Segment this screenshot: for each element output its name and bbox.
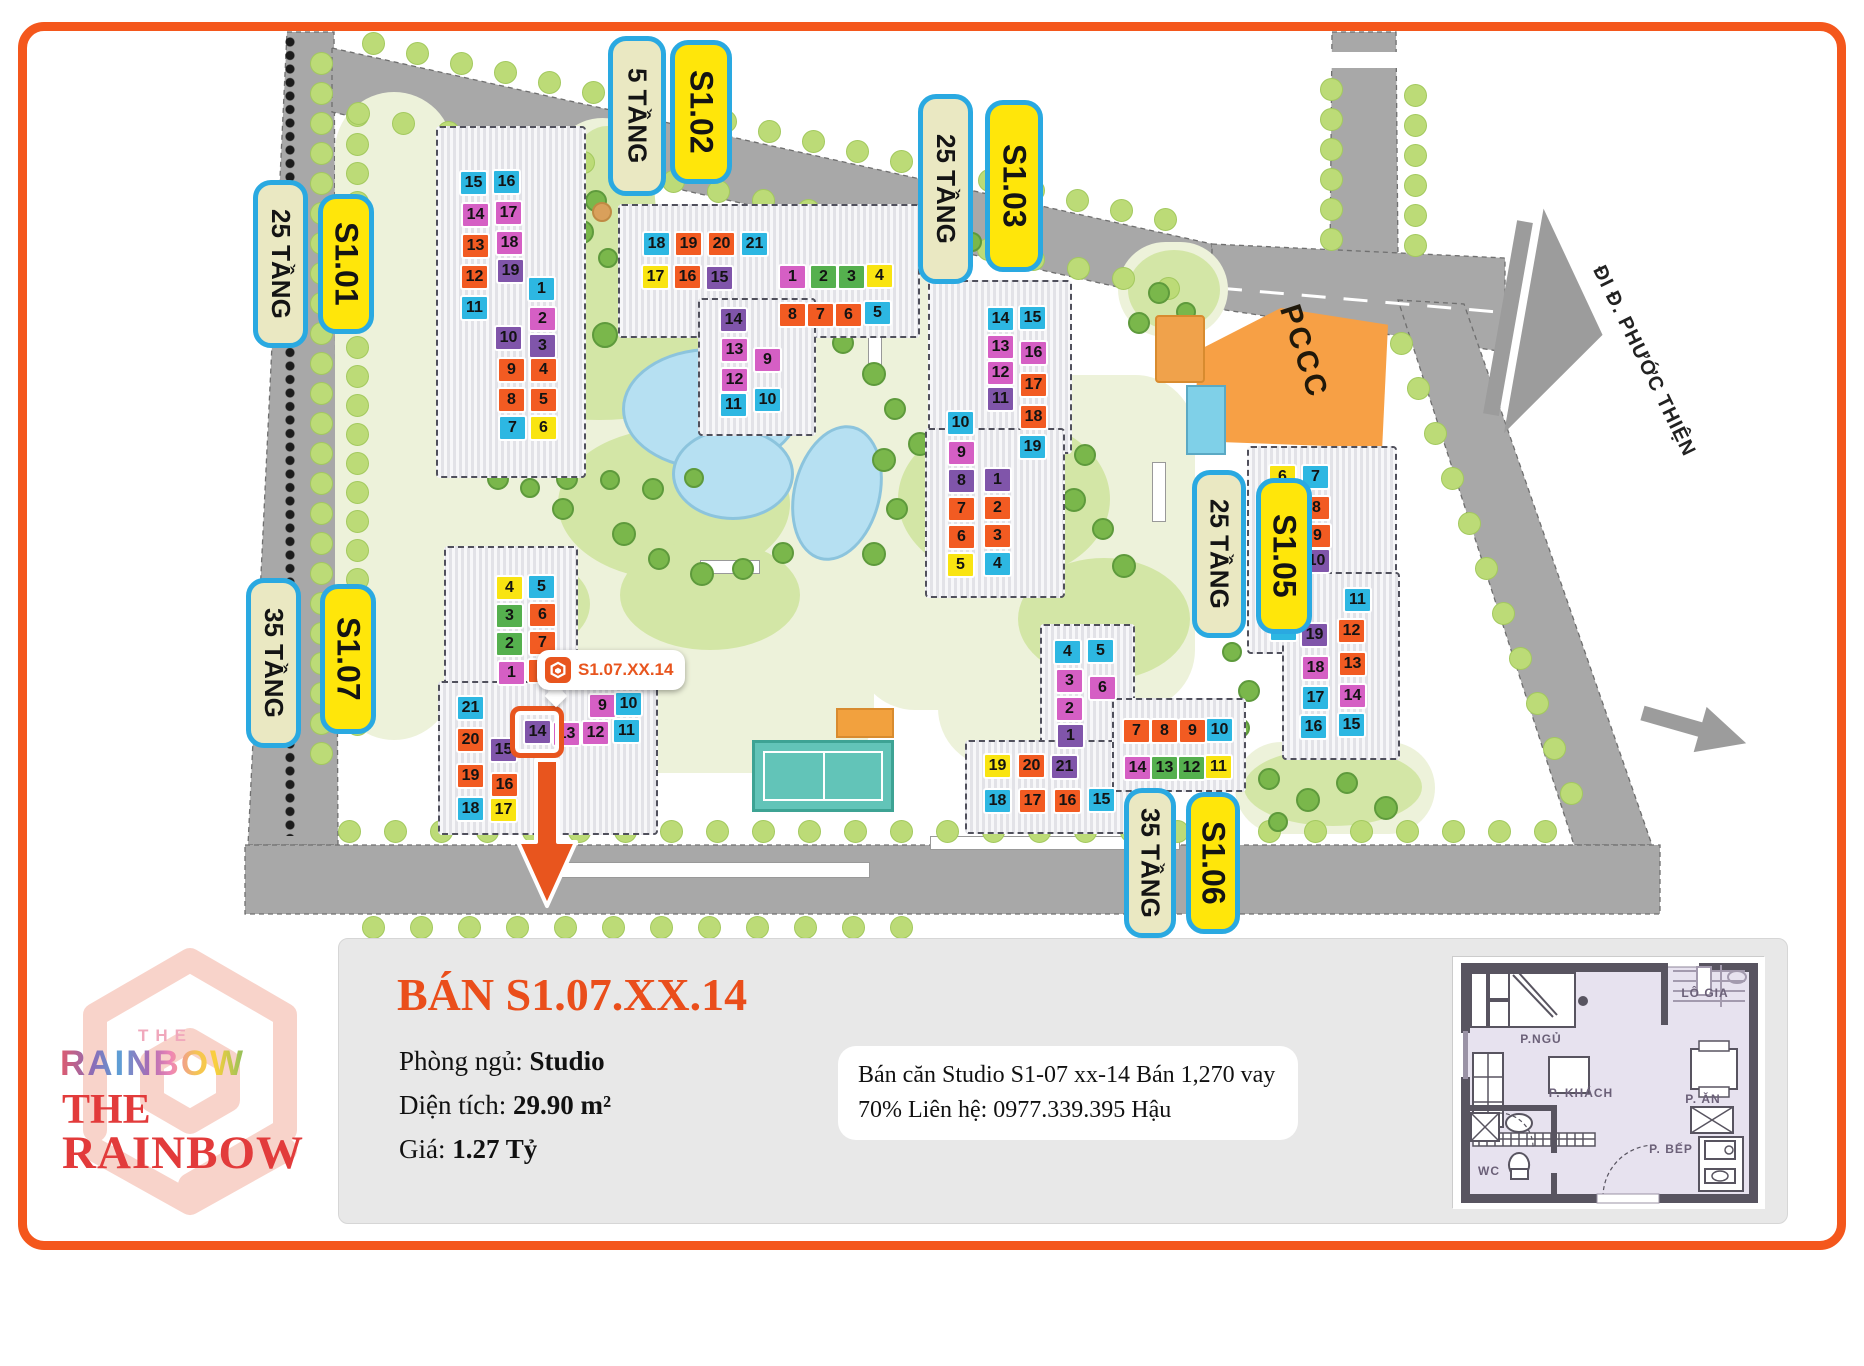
spec-area: Diện tích: 29.90 m² xyxy=(399,1090,611,1121)
unit-S1.06-10[interactable]: 10 xyxy=(1205,717,1234,743)
unit-S1.03-4[interactable]: 4 xyxy=(983,551,1012,577)
unit-S1.07-11[interactable]: 11 xyxy=(612,718,641,744)
unit-S1.02-16[interactable]: 16 xyxy=(673,264,702,290)
unit-S1.02-14[interactable]: 14 xyxy=(719,307,748,333)
map-label-S1.07: S1.07 xyxy=(320,584,376,734)
bush xyxy=(890,916,913,939)
unit-S1.07-18[interactable]: 18 xyxy=(456,796,485,822)
unit-S1.07-5[interactable]: 5 xyxy=(527,574,556,600)
bush xyxy=(346,510,369,533)
bush xyxy=(310,412,333,435)
unit-S1.01-17[interactable]: 17 xyxy=(494,200,523,226)
bush xyxy=(347,102,370,125)
unit-S1.06-1[interactable]: 1 xyxy=(1056,723,1085,749)
logo-the-small: THE xyxy=(138,1026,193,1046)
bush xyxy=(1350,820,1373,843)
unit-S1.06-17[interactable]: 17 xyxy=(1018,788,1047,814)
bush xyxy=(582,81,605,104)
map-label-S1.01: S1.01 xyxy=(318,194,374,334)
tree xyxy=(1092,518,1114,540)
unit-S1.06-7[interactable]: 7 xyxy=(1122,718,1151,744)
bush xyxy=(362,32,385,55)
bush xyxy=(1488,820,1511,843)
unit-S1.02-8[interactable]: 8 xyxy=(778,302,807,328)
unit-S1.07-3[interactable]: 3 xyxy=(495,603,524,629)
bush xyxy=(798,820,821,843)
bush xyxy=(1396,820,1419,843)
road-arrow-southeast xyxy=(1636,690,1753,765)
bush xyxy=(846,140,869,163)
unit-S1.01-7[interactable]: 7 xyxy=(498,415,527,441)
selected-unit-marker[interactable]: S1.07.XX.14 xyxy=(537,650,685,690)
unit-S1.06-16[interactable]: 16 xyxy=(1053,788,1082,814)
bush xyxy=(310,442,333,465)
tree xyxy=(1222,642,1242,662)
tree xyxy=(1336,772,1358,794)
unit-S1.03-10[interactable]: 10 xyxy=(946,410,975,436)
unit-S1.03-5[interactable]: 5 xyxy=(946,552,975,578)
unit-S1.02-15[interactable]: 15 xyxy=(705,265,734,291)
unit-S1.03-2[interactable]: 2 xyxy=(983,495,1012,521)
bush xyxy=(310,82,333,105)
unit-S1.07-1[interactable]: 1 xyxy=(497,660,526,686)
map-label-25-T-NG: 25 TẦNG xyxy=(253,180,308,348)
marker-label: S1.07.XX.14 xyxy=(578,660,673,680)
unit-S1.03-1[interactable]: 1 xyxy=(983,467,1012,493)
bush xyxy=(1404,234,1427,257)
unit-S1.02-1[interactable]: 1 xyxy=(778,264,807,290)
tree xyxy=(612,522,636,546)
unit-S1.07-4[interactable]: 4 xyxy=(495,575,524,601)
bush xyxy=(362,916,385,939)
unit-S1.06-21[interactable]: 21 xyxy=(1050,754,1079,780)
tree xyxy=(1062,488,1086,512)
floorplan-room-4: P. ĂN xyxy=(1685,1091,1720,1106)
tree xyxy=(1128,312,1150,334)
tree xyxy=(592,202,612,222)
tree xyxy=(1296,788,1320,812)
spec-price-value: 1.27 Tỷ xyxy=(452,1134,537,1164)
unit-S1.03-6[interactable]: 6 xyxy=(947,524,976,550)
spec-price-label: Giá: xyxy=(399,1134,452,1164)
unit-S1.03-18[interactable]: 18 xyxy=(1019,404,1048,430)
bush xyxy=(310,142,333,165)
unit-S1.01-9[interactable]: 9 xyxy=(497,357,526,383)
spec-area-label: Diện tích: xyxy=(399,1090,513,1120)
floorplan-image: P.NGỦLÔ GIAP. KHÁCHP. ĂNP. BẾPWC xyxy=(1452,956,1764,1208)
unit-S1.01-19[interactable]: 19 xyxy=(496,258,525,284)
unit-S1.01-1[interactable]: 1 xyxy=(527,276,556,302)
unit-S1.07-21[interactable]: 21 xyxy=(456,695,485,721)
bush xyxy=(310,382,333,405)
unit-S1.01-5[interactable]: 5 xyxy=(529,387,558,413)
tree xyxy=(1074,444,1096,466)
tree xyxy=(772,542,794,564)
bush xyxy=(1404,84,1427,107)
floorplan-room-1: P.NGỦ xyxy=(1520,1031,1561,1046)
bush xyxy=(660,820,683,843)
tree xyxy=(884,398,906,420)
bush xyxy=(406,42,429,65)
bush xyxy=(1407,377,1430,400)
bush xyxy=(698,916,721,939)
bush xyxy=(458,916,481,939)
tree xyxy=(648,548,670,570)
unit-S1.06-8[interactable]: 8 xyxy=(1150,718,1179,744)
bush xyxy=(752,820,775,843)
bush xyxy=(1320,168,1343,191)
map-label-35-T-NG: 35 TẦNG xyxy=(1124,788,1176,938)
bush xyxy=(346,394,369,417)
unit-S1.02-11[interactable]: 11 xyxy=(719,392,748,418)
tree xyxy=(1112,554,1136,578)
bush xyxy=(1441,467,1464,490)
tree xyxy=(1258,768,1280,790)
tree xyxy=(520,478,540,498)
unit-S1.02-18[interactable]: 18 xyxy=(642,231,671,257)
bush xyxy=(1320,138,1343,161)
unit-S1.01-8[interactable]: 8 xyxy=(497,387,526,413)
unit-S1.06-13[interactable]: 13 xyxy=(1150,755,1179,781)
unit-S1.02-2[interactable]: 2 xyxy=(809,264,838,290)
unit-S1.02-4[interactable]: 4 xyxy=(865,263,894,289)
unit-S1.05-18[interactable]: 18 xyxy=(1301,655,1330,681)
bush xyxy=(1404,114,1427,137)
unit-S1.07-6[interactable]: 6 xyxy=(528,602,557,628)
spec-bedroom: Phòng ngủ: Studio xyxy=(399,1046,605,1077)
bush xyxy=(936,820,959,843)
unit-S1.01-12[interactable]: 12 xyxy=(460,264,489,290)
map-note xyxy=(1152,462,1166,522)
unit-S1.07-10[interactable]: 10 xyxy=(614,691,643,717)
unit-S1.01-16[interactable]: 16 xyxy=(492,169,521,195)
tree xyxy=(872,448,896,472)
floorplan-room-2: LÔ GIA xyxy=(1681,985,1728,1000)
unit-S1.01-15[interactable]: 15 xyxy=(459,170,488,196)
bush xyxy=(384,820,407,843)
crosswalk xyxy=(1326,52,1400,68)
unit-S1.05-17[interactable]: 17 xyxy=(1301,685,1330,711)
panel-title: BÁN S1.07.XX.14 xyxy=(397,968,747,1021)
tree xyxy=(1374,796,1398,820)
tree xyxy=(552,498,574,520)
unit-S1.03-8[interactable]: 8 xyxy=(947,468,976,494)
unit-S1.05-16[interactable]: 16 xyxy=(1299,714,1328,740)
unit-S1.03-16[interactable]: 16 xyxy=(1019,340,1048,366)
floorplan-room-6: WC xyxy=(1478,1164,1500,1178)
bush xyxy=(310,172,333,195)
unit-S1.02-10[interactable]: 10 xyxy=(753,387,782,413)
unit-S1.06-14[interactable]: 14 xyxy=(1123,755,1152,781)
unit-S1.03-14[interactable]: 14 xyxy=(986,306,1015,332)
bush xyxy=(1509,647,1532,670)
unit-S1.05-12[interactable]: 12 xyxy=(1337,618,1366,644)
unit-S1.03-13[interactable]: 13 xyxy=(986,334,1015,360)
bush xyxy=(1475,557,1498,580)
bush xyxy=(1390,332,1413,355)
bush xyxy=(706,820,729,843)
bush xyxy=(310,502,333,525)
unit-S1.02-7[interactable]: 7 xyxy=(806,302,835,328)
unit-S1.05-13[interactable]: 13 xyxy=(1338,651,1367,677)
bush xyxy=(346,336,369,359)
tree xyxy=(598,248,618,268)
unit-S1.02-13[interactable]: 13 xyxy=(720,337,749,363)
unit-S1.03-3[interactable]: 3 xyxy=(983,523,1012,549)
unit-S1.03-19[interactable]: 19 xyxy=(1018,434,1047,460)
bush xyxy=(346,423,369,446)
map-label-5-T-NG: 5 TẦNG xyxy=(608,36,666,196)
bush xyxy=(1543,737,1566,760)
logo-rainbow-gradient: RAINBOW xyxy=(60,1044,245,1084)
bush xyxy=(890,150,913,173)
bush xyxy=(346,365,369,388)
tree xyxy=(1148,282,1170,304)
tree xyxy=(862,362,886,386)
bush xyxy=(844,820,867,843)
playground xyxy=(836,708,894,738)
bush xyxy=(346,162,369,185)
spec-bedroom-label: Phòng ngủ: xyxy=(399,1046,530,1076)
unit-S1.03-12[interactable]: 12 xyxy=(986,360,1015,386)
bush xyxy=(794,916,817,939)
bush xyxy=(392,112,415,135)
unit-S1.02-20[interactable]: 20 xyxy=(707,231,736,257)
bush xyxy=(1304,820,1327,843)
bush xyxy=(1320,78,1343,101)
map-label-S1.03: S1.03 xyxy=(985,100,1043,272)
bush xyxy=(1110,199,1133,222)
unit-S1.05-15[interactable]: 15 xyxy=(1337,712,1366,738)
unit-S1.06-9[interactable]: 9 xyxy=(1178,718,1207,744)
map-label-S1.02: S1.02 xyxy=(670,40,732,184)
tree xyxy=(684,468,704,488)
bush xyxy=(746,916,769,939)
unit-S1.01-10[interactable]: 10 xyxy=(494,325,523,351)
bush xyxy=(1066,189,1089,212)
tree xyxy=(1268,812,1288,832)
unit-S1.06-20[interactable]: 20 xyxy=(1017,753,1046,779)
unit-S1.02-19[interactable]: 19 xyxy=(674,231,703,257)
logo-rainbow-text: RAINBOW xyxy=(62,1126,304,1180)
map-label-25-T-NG: 25 TẦNG xyxy=(918,94,973,284)
floorplan-room-3: P. KHÁCH xyxy=(1549,1085,1613,1100)
unit-S1.06-11[interactable]: 11 xyxy=(1204,754,1233,780)
unit-S1.01-18[interactable]: 18 xyxy=(495,230,524,256)
tree xyxy=(732,558,754,580)
sports-courts xyxy=(1186,385,1226,455)
unit-S1.01-13[interactable]: 13 xyxy=(461,233,490,259)
bush xyxy=(1404,144,1427,167)
bush xyxy=(346,133,369,156)
unit-S1.05-11[interactable]: 11 xyxy=(1343,587,1372,613)
bush xyxy=(310,472,333,495)
bush xyxy=(450,52,473,75)
map-label-25-T-NG: 25 TẦNG xyxy=(1192,470,1246,638)
unit-S1.01-3[interactable]: 3 xyxy=(528,333,557,359)
unit-S1.06-12[interactable]: 12 xyxy=(1177,755,1206,781)
unit-S1.02-9[interactable]: 9 xyxy=(753,347,782,373)
bush xyxy=(310,562,333,585)
bush xyxy=(1560,782,1583,805)
bush xyxy=(1404,174,1427,197)
unit-S1.01-11[interactable]: 11 xyxy=(460,295,489,321)
unit-S1.06-18[interactable]: 18 xyxy=(983,788,1012,814)
tree xyxy=(690,562,714,586)
unit-S1.01-6[interactable]: 6 xyxy=(529,415,558,441)
unit-S1.07-2[interactable]: 2 xyxy=(495,631,524,657)
tree xyxy=(592,322,618,348)
bush xyxy=(310,742,333,765)
listing-description: Bán căn Studio S1-07 xx-14 Bán 1,270 vay… xyxy=(838,1046,1298,1140)
basketball-court xyxy=(1155,315,1205,383)
unit-S1.02-21[interactable]: 21 xyxy=(740,231,769,257)
unit-S1.01-2[interactable]: 2 xyxy=(528,306,557,332)
unit-S1.06-6[interactable]: 6 xyxy=(1088,675,1117,701)
unit-S1.01-14[interactable]: 14 xyxy=(461,202,490,228)
spec-bedroom-value: Studio xyxy=(530,1046,605,1076)
bush xyxy=(310,112,333,135)
unit-S1.07-20[interactable]: 20 xyxy=(456,727,485,753)
unit-S1.03-11[interactable]: 11 xyxy=(986,386,1015,412)
bush xyxy=(310,352,333,375)
map-label-S1.05: S1.05 xyxy=(1256,478,1312,634)
bush xyxy=(1534,820,1557,843)
map-label-35-T-NG: 35 TẦNG xyxy=(246,578,301,748)
bush xyxy=(410,916,433,939)
unit-S1.06-3[interactable]: 3 xyxy=(1055,668,1084,694)
bush xyxy=(1320,108,1343,131)
tree xyxy=(600,470,620,490)
bush xyxy=(890,820,913,843)
bush xyxy=(346,452,369,475)
unit-S1.06-4[interactable]: 4 xyxy=(1053,639,1082,665)
unit-S1.07-12[interactable]: 12 xyxy=(581,720,610,746)
bush xyxy=(338,820,361,843)
unit-S1.02-12[interactable]: 12 xyxy=(720,367,749,393)
unit-S1.02-6[interactable]: 6 xyxy=(834,302,863,328)
unit-S1.03-7[interactable]: 7 xyxy=(947,496,976,522)
spec-area-value: 29.90 m² xyxy=(513,1090,611,1120)
marker-hexagon-icon xyxy=(545,657,571,683)
unit-S1.03-17[interactable]: 17 xyxy=(1019,372,1048,398)
tennis-court xyxy=(752,740,894,812)
bush xyxy=(1320,228,1343,251)
unit-S1.07-19[interactable]: 19 xyxy=(456,763,485,789)
unit-S1.03-15[interactable]: 15 xyxy=(1018,305,1047,331)
unit-S1.06-5[interactable]: 5 xyxy=(1086,638,1115,664)
tree xyxy=(642,478,664,500)
spec-price: Giá: 1.27 Tỷ xyxy=(399,1134,537,1165)
unit-S1.01-4[interactable]: 4 xyxy=(529,357,558,383)
bush xyxy=(346,481,369,504)
floorplan-room-5: P. BẾP xyxy=(1649,1141,1693,1156)
bush xyxy=(310,52,333,75)
bush xyxy=(1320,198,1343,221)
bush xyxy=(650,916,673,939)
bush xyxy=(346,539,369,562)
bush xyxy=(1458,512,1481,535)
unit-S1.06-2[interactable]: 2 xyxy=(1055,696,1084,722)
unit-S1.06-19[interactable]: 19 xyxy=(983,753,1012,779)
selected-unit-ring xyxy=(510,706,564,758)
unit-S1.02-3[interactable]: 3 xyxy=(837,264,866,290)
bush xyxy=(1404,204,1427,227)
page: { "page": {"border_color": "#f4571c"}, "… xyxy=(0,0,1864,1366)
bush xyxy=(842,916,865,939)
tree xyxy=(886,498,908,520)
selected-unit-arrow xyxy=(492,752,612,922)
tree xyxy=(862,542,886,566)
unit-S1.02-5[interactable]: 5 xyxy=(863,300,892,326)
bush xyxy=(1442,820,1465,843)
unit-S1.05-14[interactable]: 14 xyxy=(1338,683,1367,709)
bush xyxy=(1526,692,1549,715)
unit-S1.03-9[interactable]: 9 xyxy=(947,440,976,466)
bush xyxy=(1492,602,1515,625)
unit-S1.06-15[interactable]: 15 xyxy=(1087,787,1116,813)
bush xyxy=(1424,422,1447,445)
bush xyxy=(802,130,825,153)
map-label-S1.06: S1.06 xyxy=(1186,792,1240,934)
bush xyxy=(1112,267,1135,290)
bush xyxy=(310,532,333,555)
unit-S1.02-17[interactable]: 17 xyxy=(641,264,670,290)
unit-S1.07-9[interactable]: 9 xyxy=(588,693,617,719)
